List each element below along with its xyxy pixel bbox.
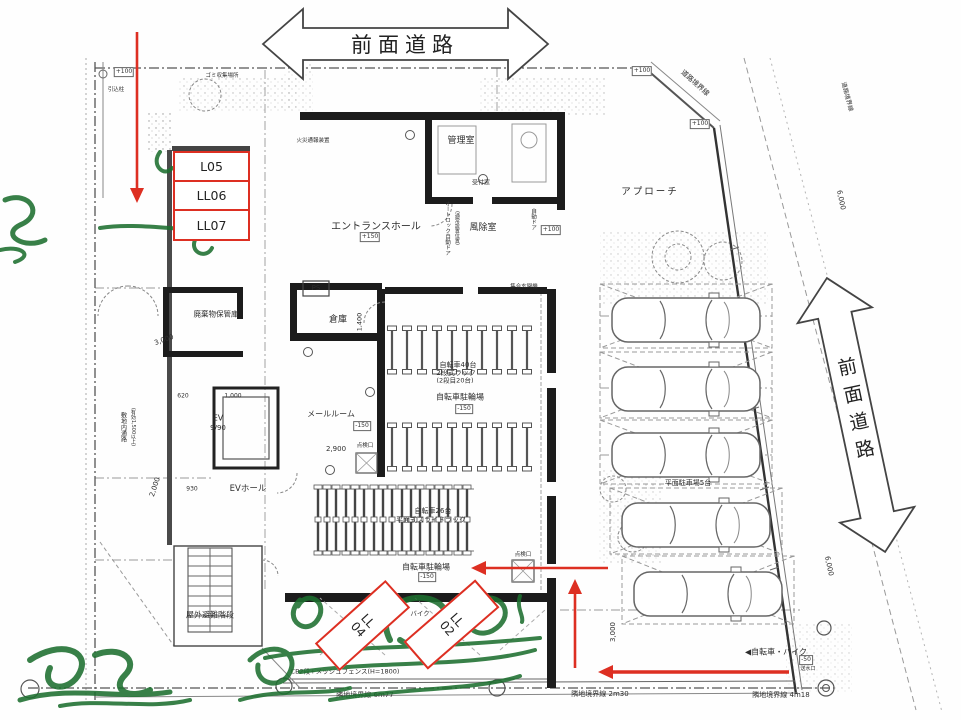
label-bike26-rack: 平面式スライドラック [396,516,466,524]
level-mail: -150 [353,421,371,431]
label-reception-window: 受付窓 [472,181,490,188]
label-autolock-note: (通常設置位置) [453,211,459,245]
label-moto: バイク [410,610,429,617]
label-hatch2: 点検口 [515,552,532,558]
label-bike26: 自転車26台 [415,507,452,515]
unit-label-ll02-text: LL02 [437,610,467,639]
level-top3: +100 [690,119,710,129]
parked-cars [612,293,782,621]
label-lead-in-pole: 引込柱 [108,87,125,93]
room-windbreak: 風除室 [469,223,496,233]
room-outdoor-stairs: 屋外避難階段 [186,610,234,619]
room-ps: PS [312,284,321,292]
label-site-passage-note: (有効1,500以上) [129,408,135,446]
label-approach: アプローチ [621,188,679,199]
dim-930: 930 [186,487,197,494]
label-auto-door: 自動ドア [530,208,536,230]
dim-1000: 1,000 [224,394,241,401]
level-drain: -50 [799,655,813,665]
label-bike-moto-dir: ◀自転車・バイク [745,647,807,656]
room-mail: メールルーム [307,409,355,418]
dim-3000-right: 3,000 [609,622,617,642]
outdoor-stairs-drawing [174,546,262,646]
label-autolock-door: オートロック自動ドア [444,201,450,256]
unit-label-ll04-text: LL04 [348,611,377,640]
dim-1400: 1,400 [356,313,363,332]
room-ev: EV [213,413,224,422]
level-bike-upper: -150 [455,404,473,414]
label-fire-phone: 火災通報装置 [296,138,329,144]
front-road-top-label: 前面道路 [351,29,459,59]
label-standpipe: 送水口 [800,667,815,673]
boundary-neighbor-s: 隣地境界線 2m30 [571,690,628,698]
dim-620: 620 [177,394,188,401]
room-manager: 管理室 [447,136,474,146]
room-storage: 倉庫 [329,315,347,325]
unit-label-l05[interactable]: L05 [173,151,250,182]
site-plan-image: 前面道路 前面道路 管理室 風除室 エントランスホール +150 受付窓 集合玄… [0,0,961,720]
boundary-neighbor-sw: 隣地境界線 6m77 [336,691,393,699]
level-bike-lower: -150 [418,572,436,582]
level-top2: +100 [632,66,652,76]
room-waste-storage: 廃棄物保管庫 [194,311,239,320]
unit-label-ll06-text: LL06 [197,188,227,203]
label-ev-capacity: 9/90 [210,424,226,432]
level-windbreak: +100 [541,225,561,235]
label-trash-area: ゴミ収集場所 [205,73,238,79]
label-fence: CB2段+メッシュフェンス(H=1800) [291,668,400,675]
label-flat-parking: 平面駐車場5台 [665,479,711,487]
level-top1: +100 [114,67,134,77]
unit-label-ll07[interactable]: LL07 [173,209,250,241]
dim-2900: 2,900 [326,445,346,453]
label-bike-lot-upper: 自転車駐輪場 [436,392,484,401]
level-entrance: +150 [360,232,380,242]
label-bike-lot-lower: 自転車駐輪場 [402,562,450,571]
boundary-neighbor-se: 隣地境界線 4m18 [752,691,809,699]
unit-label-ll07-text: LL07 [197,218,227,233]
label-site-passage: 敷地内通路 [119,412,126,442]
label-bike40-note: (2段目20台) [437,377,474,384]
room-ev-hall: EVホール [230,485,267,495]
label-bike40: 自転車40台 [440,361,477,369]
label-hatch1: 点検口 [357,443,374,449]
unit-label-ll06[interactable]: LL06 [173,180,250,211]
label-entry-panel: 集合玄関機 [510,284,538,290]
room-entrance-hall: エントランスホール [331,221,421,233]
unit-label-l05-text: L05 [200,159,223,174]
